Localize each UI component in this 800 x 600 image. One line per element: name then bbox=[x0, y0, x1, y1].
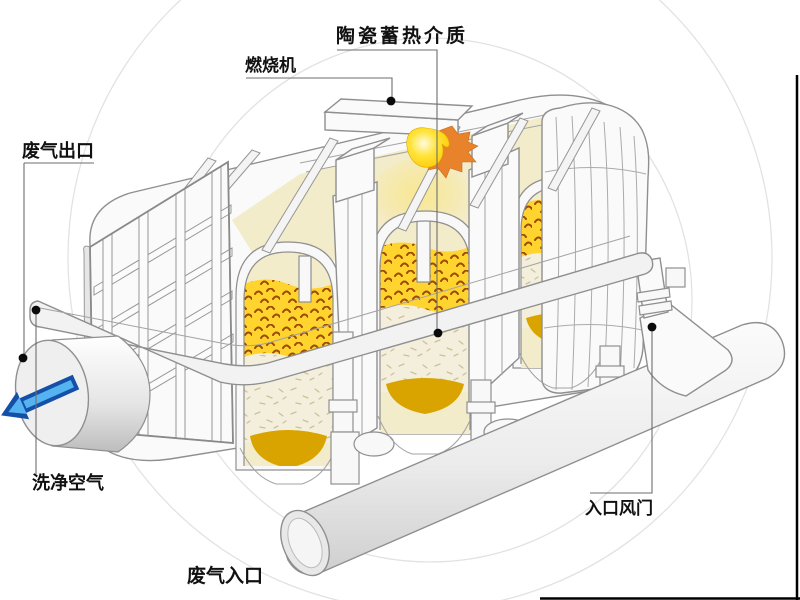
burner-leader bbox=[246, 78, 392, 98]
label-clean-air: 洗净空气 bbox=[32, 474, 104, 494]
ceramic-media-dot bbox=[434, 329, 443, 338]
label-inlet-damper: 入口风门 bbox=[585, 500, 653, 519]
inlet-damper-dot bbox=[648, 323, 657, 332]
outlet-cylinder bbox=[0, 336, 150, 452]
label-waste-gas-inlet: 废气入口 bbox=[187, 566, 263, 587]
label-ceramic-media: 陶瓷蓄热介质 bbox=[336, 26, 468, 47]
right-end-cap bbox=[542, 103, 649, 393]
label-burner: 燃烧机 bbox=[245, 57, 296, 76]
clean-air-dot bbox=[32, 306, 41, 315]
label-waste-gas-outlet: 废气出口 bbox=[22, 142, 94, 162]
waste-gas-outlet-dot bbox=[19, 354, 28, 363]
diagram-canvas bbox=[0, 0, 800, 600]
rto-diagram: 陶瓷蓄热介质 燃烧机 废气出口 洗净空气 入口风门 废气入口 bbox=[0, 0, 800, 600]
burner-dot bbox=[387, 97, 396, 106]
